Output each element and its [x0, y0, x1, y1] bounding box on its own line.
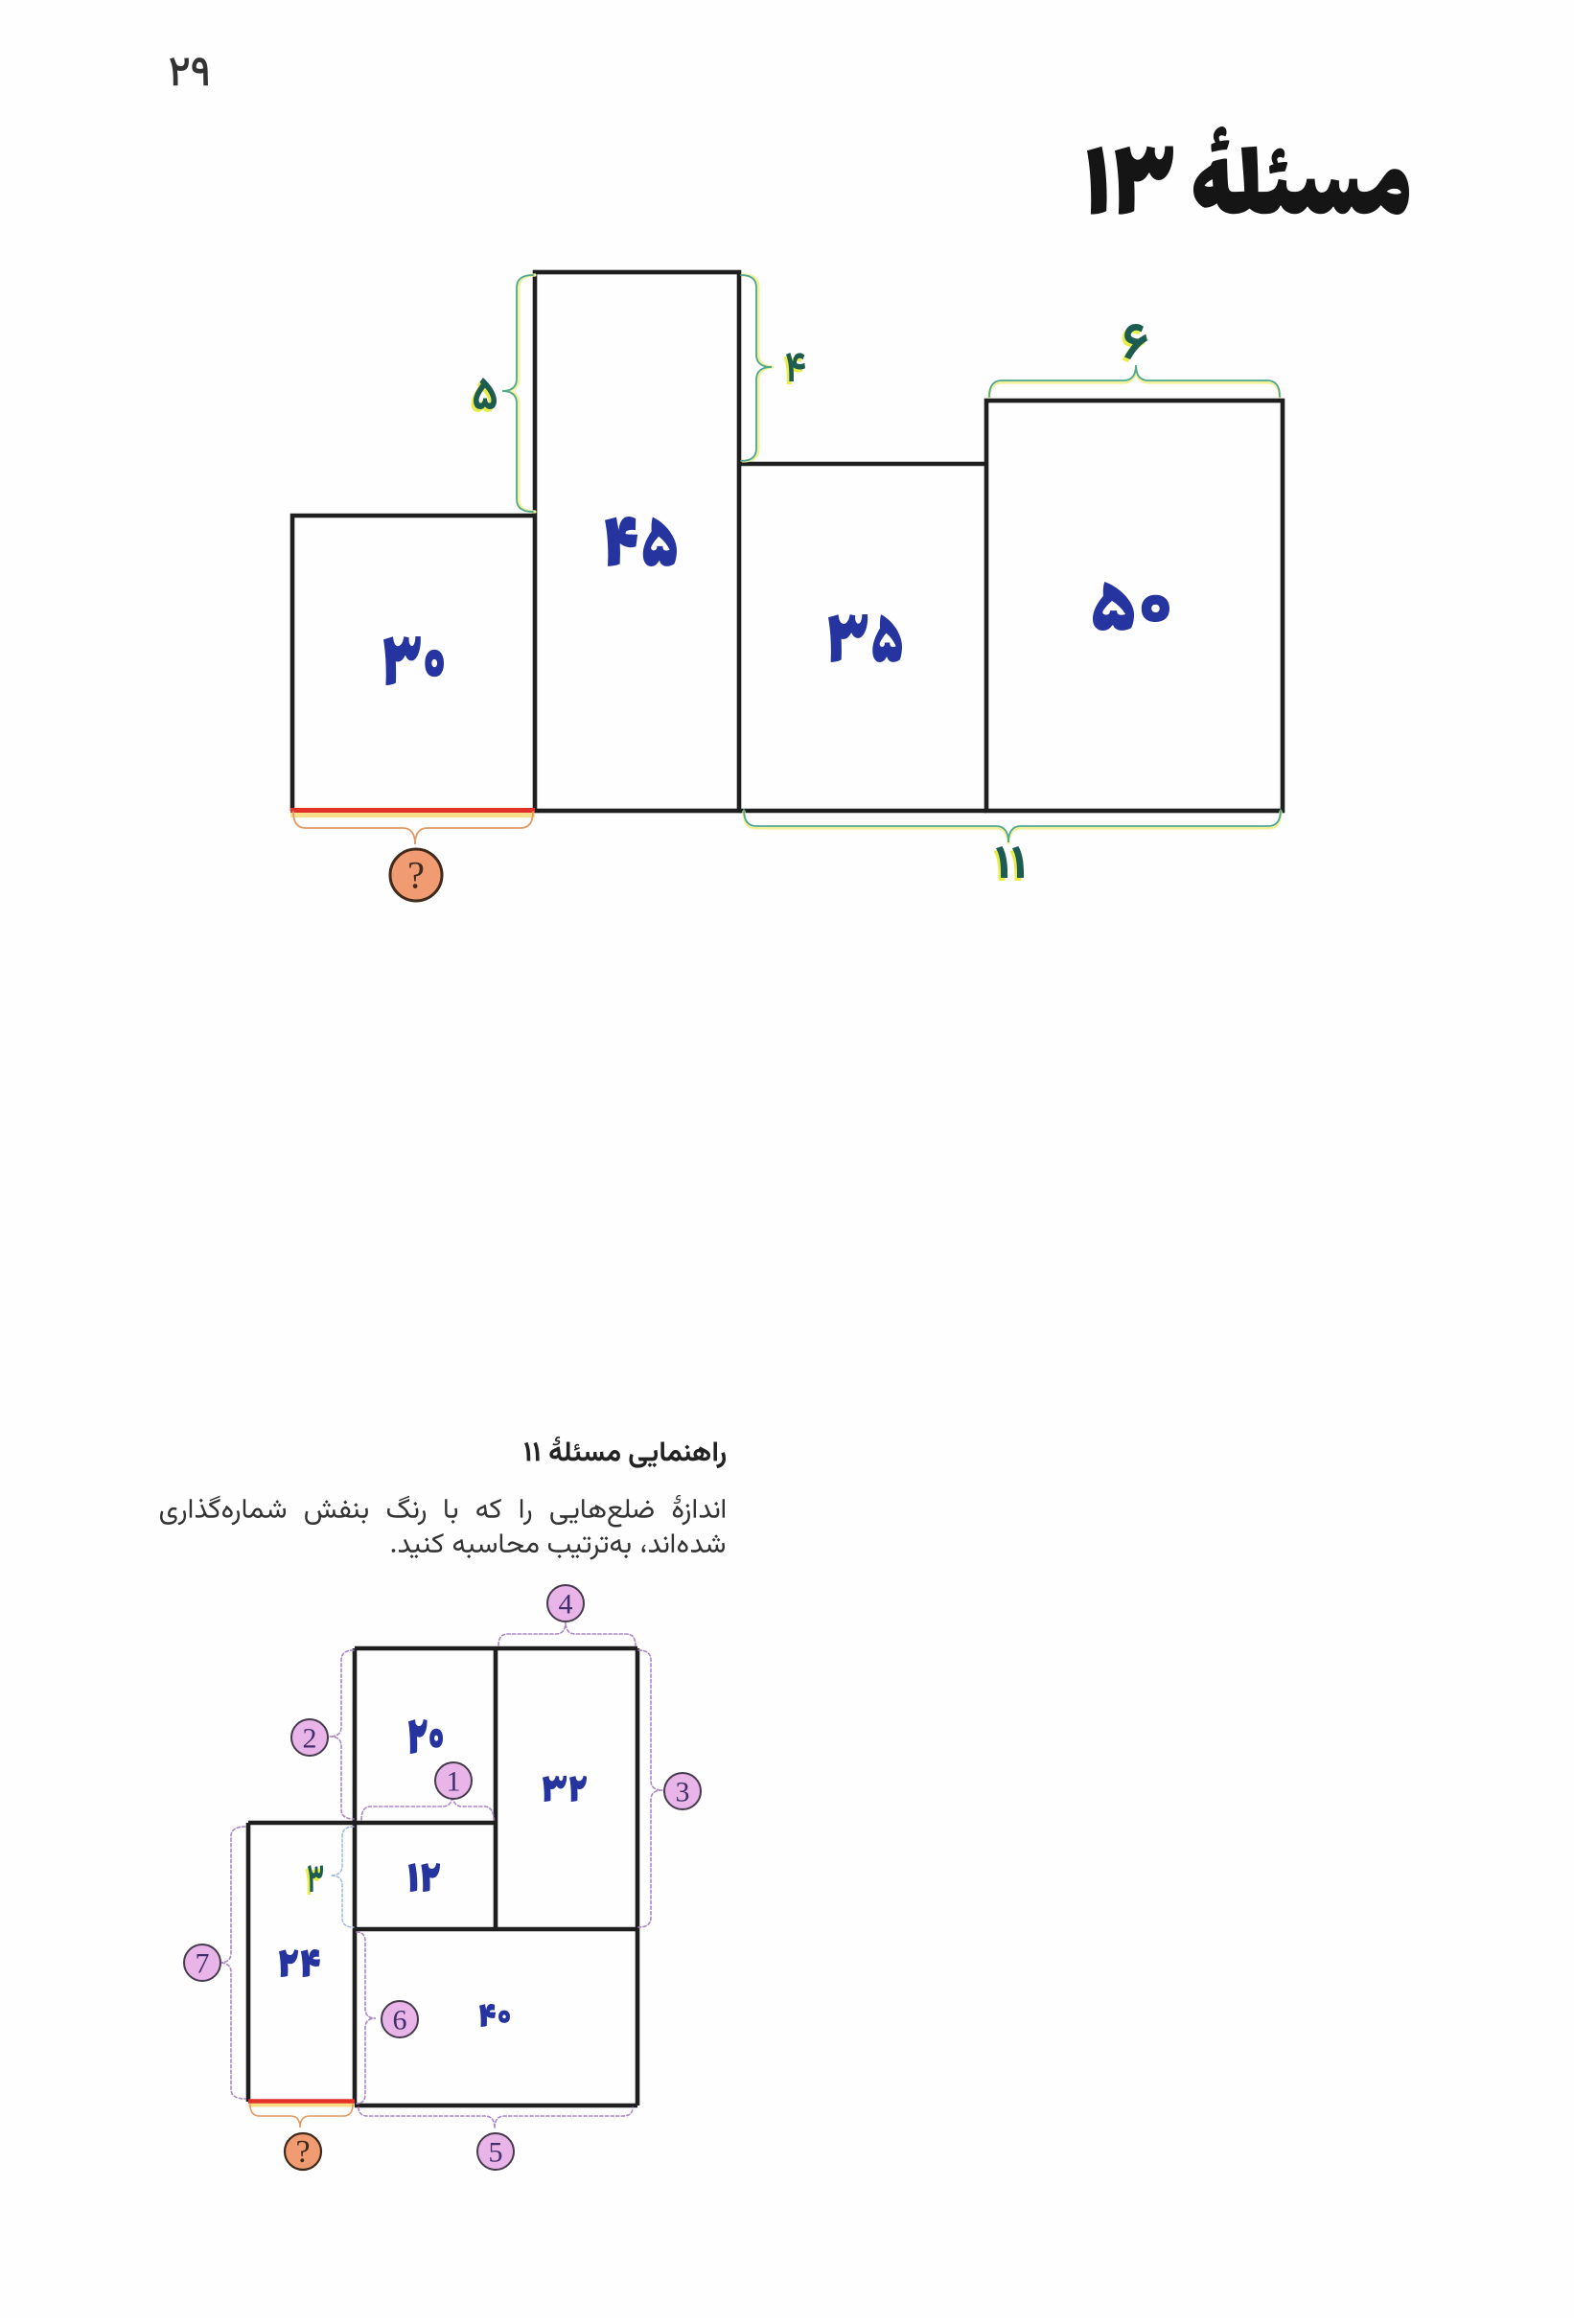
svg-text:4: 4	[559, 1589, 573, 1621]
svg-text:5: 5	[489, 2137, 503, 2169]
svg-text:6: 6	[393, 2005, 407, 2036]
svg-text:?: ?	[407, 854, 425, 897]
svg-text:?: ?	[295, 2134, 310, 2170]
svg-text:3: 3	[676, 1777, 690, 1808]
svg-text:1: 1	[447, 1766, 461, 1798]
svg-text:2: 2	[303, 1723, 317, 1755]
svg-text:7: 7	[196, 1948, 210, 1980]
